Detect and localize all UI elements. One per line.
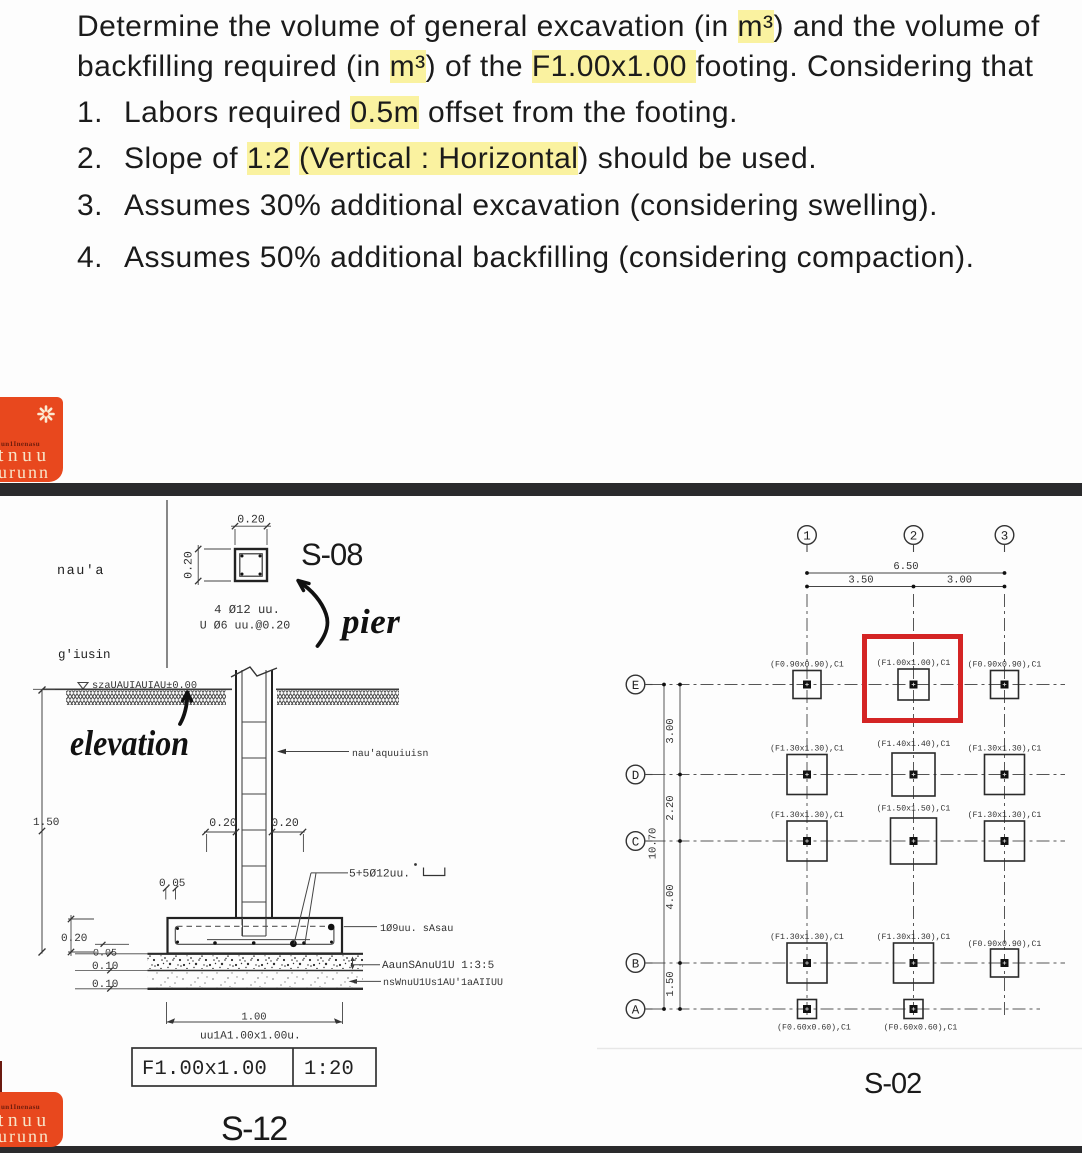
svg-text:(F1.30x1.30),C1: (F1.30x1.30),C1 bbox=[968, 811, 1042, 820]
svg-text:F1.00x1.00: F1.00x1.00 bbox=[142, 1058, 267, 1081]
svg-text:pier: pier bbox=[339, 602, 400, 641]
svg-text:(F0.60x0.60),C1: (F0.60x0.60),C1 bbox=[884, 1024, 958, 1033]
svg-text:szaUAUIAUIAU±0.00: szaUAUIAUIAU±0.00 bbox=[92, 680, 197, 692]
svg-text:S-02: S-02 bbox=[864, 1068, 921, 1100]
svg-text:1.00: 1.00 bbox=[241, 1012, 266, 1024]
svg-text:(F1.30x1.30),C1: (F1.30x1.30),C1 bbox=[770, 933, 844, 942]
svg-text:5+5Ø12uu.: 5+5Ø12uu. bbox=[349, 869, 410, 881]
svg-text:(F0.60x0.60),C1: (F0.60x0.60),C1 bbox=[777, 1024, 851, 1033]
svg-text:1Ø9uu. sAsau: 1Ø9uu. sAsau bbox=[380, 924, 453, 935]
svg-text:U Ø6 uu.@0.20: U Ø6 uu.@0.20 bbox=[200, 620, 290, 633]
svg-text:(F1.30x1.30),C1: (F1.30x1.30),C1 bbox=[770, 745, 844, 754]
svg-text:0.10: 0.10 bbox=[92, 961, 118, 973]
svg-text:nsWnuU1Us1AU'1aAIIUU: nsWnuU1Us1AU'1aAIIUU bbox=[383, 977, 503, 989]
svg-text:(F1.30x1.30),C1: (F1.30x1.30),C1 bbox=[968, 745, 1042, 754]
svg-text:6.50: 6.50 bbox=[893, 561, 918, 573]
svg-text:S-08: S-08 bbox=[301, 537, 362, 572]
svg-text:(F1.40x1.40),C1: (F1.40x1.40),C1 bbox=[877, 740, 951, 749]
svg-text:AaunSAnuU1U 1:3:5: AaunSAnuU1U 1:3:5 bbox=[382, 960, 494, 972]
svg-text:0.05: 0.05 bbox=[93, 949, 117, 960]
svg-text:S-12: S-12 bbox=[221, 1110, 287, 1148]
svg-text:B: B bbox=[632, 958, 640, 972]
svg-text:uu1A1.00x1.00u.: uu1A1.00x1.00u. bbox=[200, 1031, 301, 1043]
svg-text:(F0.90x0.90),C1: (F0.90x0.90),C1 bbox=[968, 940, 1042, 949]
svg-text:(F1.30x1.30),C1: (F1.30x1.30),C1 bbox=[770, 811, 844, 820]
svg-text:0.10: 0.10 bbox=[92, 979, 118, 991]
svg-text:1: 1 bbox=[803, 530, 811, 544]
svg-text:3.50: 3.50 bbox=[848, 575, 873, 587]
svg-text:4 Ø12 uu.: 4 Ø12 uu. bbox=[214, 603, 280, 617]
svg-text:3.00: 3.00 bbox=[947, 575, 972, 587]
svg-text:0.20: 0.20 bbox=[61, 933, 87, 945]
svg-text:3.00: 3.00 bbox=[665, 718, 677, 743]
svg-text:A: A bbox=[632, 1004, 640, 1018]
svg-text:1.50: 1.50 bbox=[33, 817, 59, 829]
svg-text:(F1.30x1.30),C1: (F1.30x1.30),C1 bbox=[877, 933, 951, 942]
svg-text:2.20: 2.20 bbox=[665, 795, 677, 820]
svg-text:0.20: 0.20 bbox=[237, 514, 265, 527]
svg-text:C: C bbox=[632, 836, 640, 850]
svg-text:0.20: 0.20 bbox=[271, 817, 299, 830]
svg-text:3: 3 bbox=[1001, 530, 1009, 544]
svg-text:E: E bbox=[632, 679, 640, 693]
svg-text:4.00: 4.00 bbox=[665, 884, 677, 909]
svg-text:nau'aquuiuisn: nau'aquuiuisn bbox=[352, 748, 429, 759]
svg-text:(F0.90x0.90),C1: (F0.90x0.90),C1 bbox=[770, 661, 844, 670]
svg-text:10.70: 10.70 bbox=[648, 828, 660, 860]
svg-text:g'iusin: g'iusin bbox=[58, 648, 111, 662]
svg-text:(F0.90x0.90),C1: (F0.90x0.90),C1 bbox=[968, 661, 1042, 670]
svg-text:1:20: 1:20 bbox=[304, 1058, 354, 1081]
svg-text:(F1.50x1.50),C1: (F1.50x1.50),C1 bbox=[877, 805, 951, 814]
svg-text:2: 2 bbox=[910, 530, 918, 544]
svg-text:0.20: 0.20 bbox=[183, 551, 196, 579]
svg-text:(F1.00x1.00),C1: (F1.00x1.00),C1 bbox=[877, 659, 951, 668]
svg-text:0.20: 0.20 bbox=[209, 817, 237, 830]
svg-text:elevation: elevation bbox=[70, 723, 189, 763]
svg-text:0.05: 0.05 bbox=[159, 878, 185, 890]
svg-text:nau'a: nau'a bbox=[57, 564, 105, 579]
svg-text:1.50: 1.50 bbox=[665, 971, 677, 996]
svg-text:D: D bbox=[632, 769, 640, 783]
